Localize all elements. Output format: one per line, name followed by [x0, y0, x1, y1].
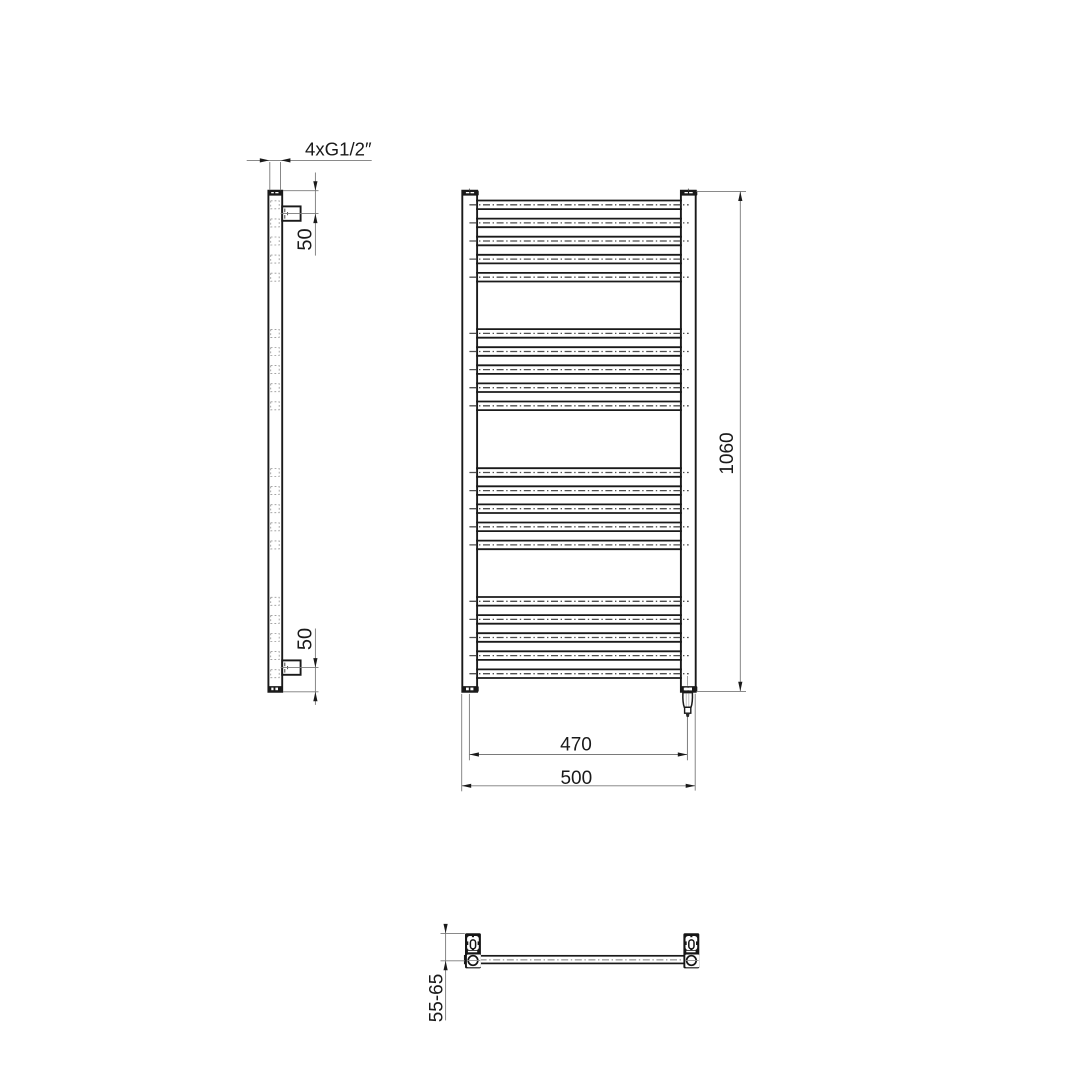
- svg-text:50: 50: [294, 228, 316, 250]
- svg-text:55-65: 55-65: [427, 974, 448, 1023]
- svg-text:500: 500: [560, 768, 592, 789]
- svg-text:1060: 1060: [717, 432, 738, 474]
- svg-text:50: 50: [294, 628, 316, 650]
- svg-text:4xG1/2″: 4xG1/2″: [305, 138, 372, 159]
- svg-text:470: 470: [560, 735, 592, 756]
